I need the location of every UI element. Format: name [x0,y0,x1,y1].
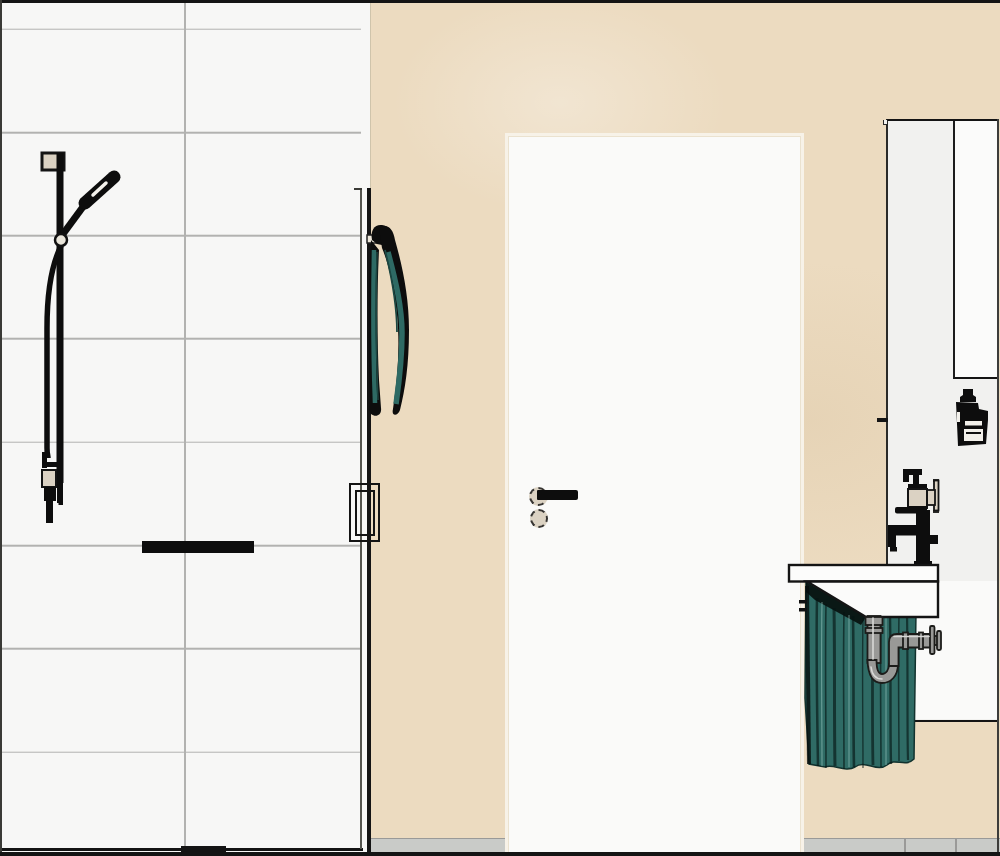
shower-rail [57,153,64,483]
drawing-top-border [0,0,1000,3]
dispenser-bracket [927,490,935,505]
trap-outlet-pipe [889,634,932,666]
bathroom-elevation [0,0,1000,856]
right-wall-corner [997,119,999,853]
door-lever-handle [537,490,578,500]
trap-wall-flange [930,626,935,654]
floor-joint [955,838,957,853]
wall-corner-upper [370,3,372,188]
basin-deck [789,565,938,582]
shower-rail-set [36,148,121,528]
door-lock-rosette [530,509,548,528]
drawing-left-border [0,0,2,852]
drawing-bottom-border [0,852,1000,856]
floor-joint [904,838,906,853]
shower-door-handle-inner [355,490,375,536]
mirror-cabinet-notch [883,120,887,125]
faucet-spout [888,525,918,547]
wall-tick-mark [877,418,888,422]
rail-slider [55,234,67,246]
shower-outlet-fitting [42,452,60,523]
dispenser-nozzle [903,469,909,482]
towel [363,220,418,425]
cabinet-door [953,121,998,379]
sink-trap [858,612,948,692]
towel-right-strand [379,226,409,415]
cosmetic-bottle [948,387,993,449]
shower-shelf [142,541,254,553]
glass-top-fitting [354,188,362,190]
